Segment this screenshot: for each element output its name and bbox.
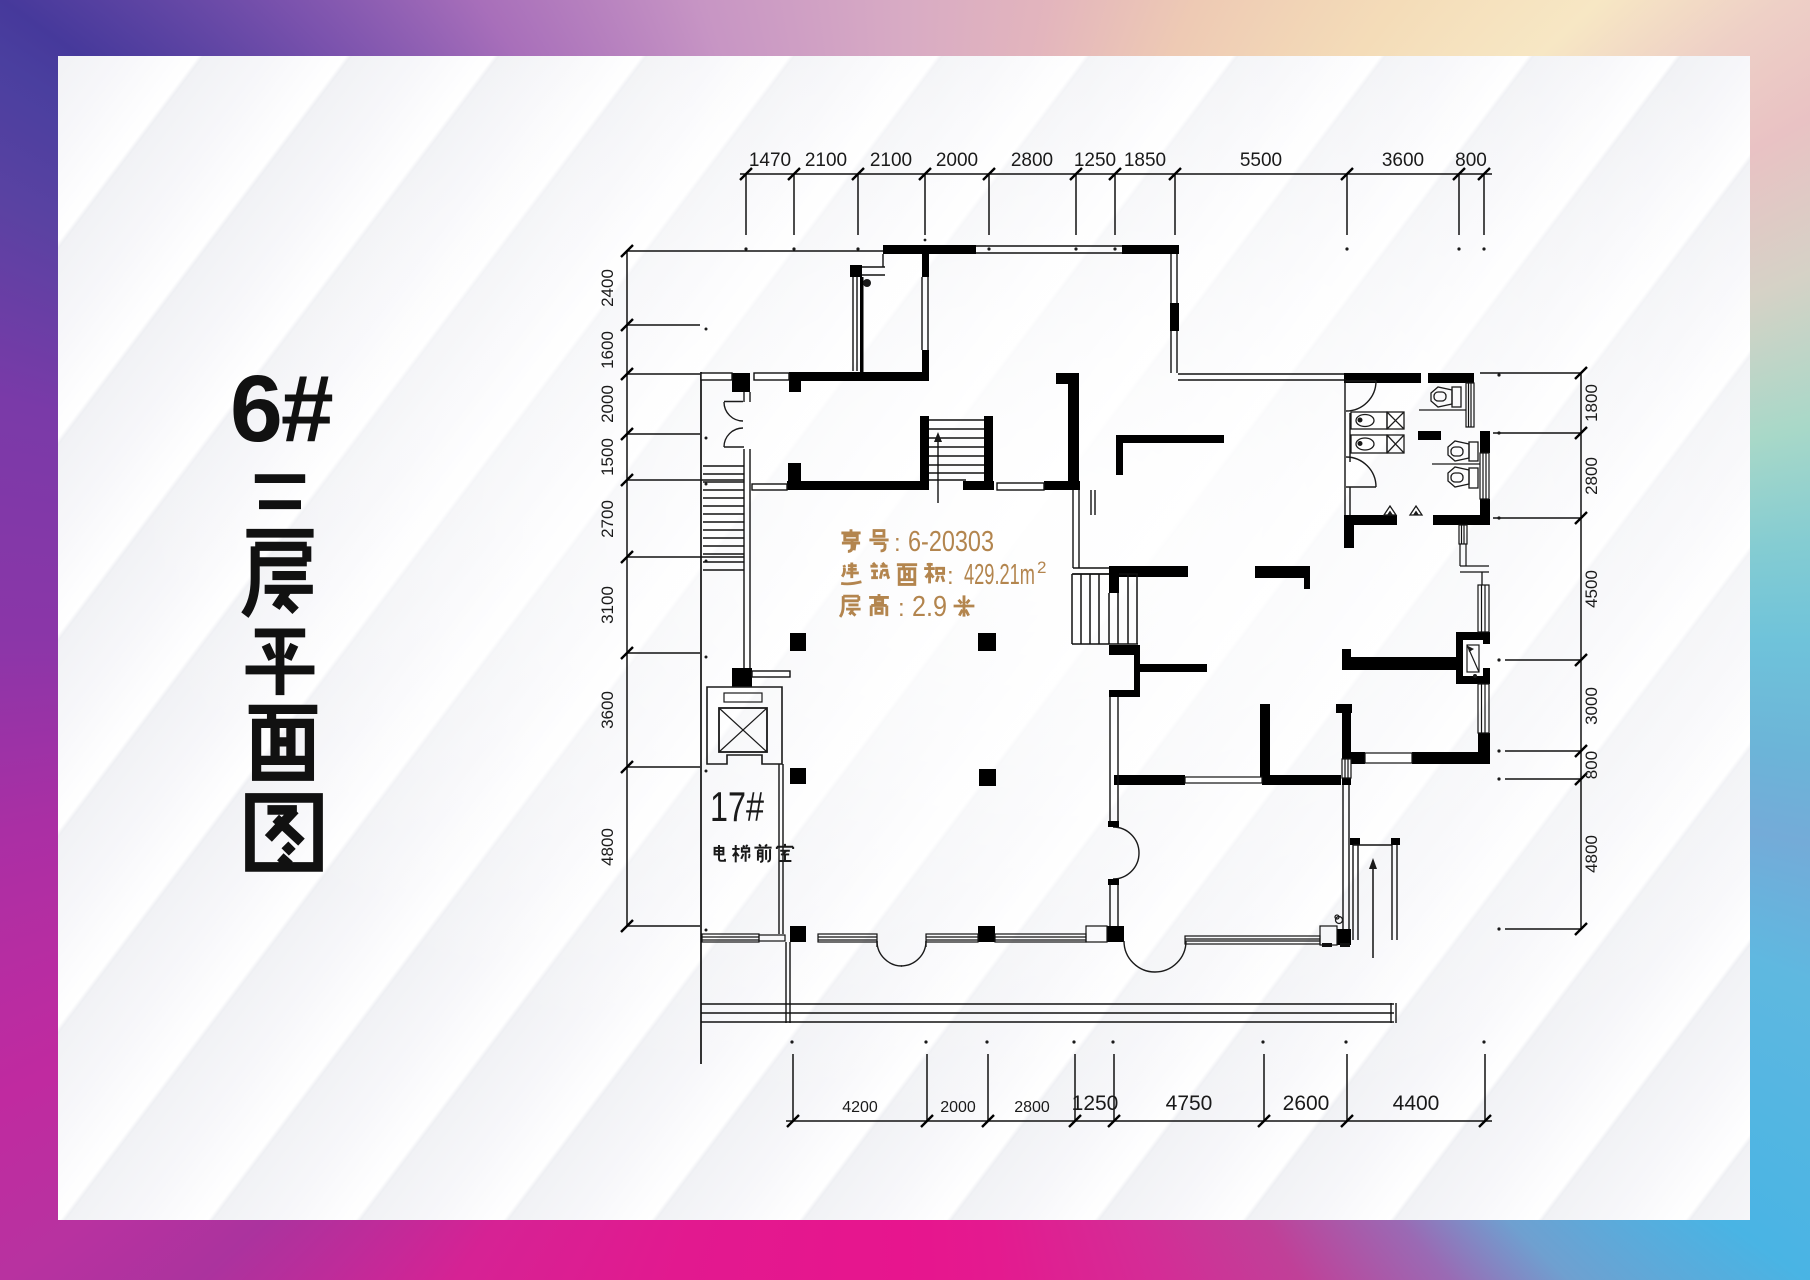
svg-text:1250: 1250 <box>1074 150 1116 171</box>
svg-text:2000: 2000 <box>940 1099 976 1116</box>
svg-text:4500: 4500 <box>1582 570 1601 608</box>
svg-text:2000: 2000 <box>598 385 617 423</box>
svg-text:2100: 2100 <box>805 150 847 171</box>
svg-text:1850: 1850 <box>1124 150 1166 171</box>
svg-text::: : <box>894 530 901 557</box>
svg-text:2400: 2400 <box>598 269 617 307</box>
svg-text:800: 800 <box>1582 751 1601 779</box>
svg-text:1250: 1250 <box>1072 1092 1119 1115</box>
svg-text:3600: 3600 <box>1382 150 1424 171</box>
svg-text:4800: 4800 <box>1582 835 1601 873</box>
svg-text:2.9: 2.9 <box>912 591 947 623</box>
svg-text:2800: 2800 <box>1582 457 1601 495</box>
svg-text::: : <box>947 563 954 590</box>
svg-text:2800: 2800 <box>1014 1099 1050 1116</box>
svg-text:4750: 4750 <box>1166 1092 1213 1115</box>
svg-text:2700: 2700 <box>598 500 617 538</box>
svg-text:3000: 3000 <box>1582 687 1601 725</box>
svg-text:2800: 2800 <box>1011 150 1053 171</box>
svg-text:2600: 2600 <box>1283 1092 1330 1115</box>
svg-text:1500: 1500 <box>598 438 617 476</box>
svg-text:2100: 2100 <box>870 150 912 171</box>
svg-text::: : <box>898 595 905 622</box>
svg-text:1600: 1600 <box>598 331 617 369</box>
svg-text:6-20303: 6-20303 <box>908 526 994 558</box>
svg-text:800: 800 <box>1455 150 1487 171</box>
svg-text:3600: 3600 <box>598 691 617 729</box>
svg-text:4800: 4800 <box>598 828 617 866</box>
svg-text:2000: 2000 <box>936 150 978 171</box>
svg-text:2: 2 <box>1037 558 1046 577</box>
svg-text:1800: 1800 <box>1582 384 1601 422</box>
svg-text:5500: 5500 <box>1240 150 1282 171</box>
svg-text:4400: 4400 <box>1393 1092 1440 1115</box>
svg-text:1470: 1470 <box>749 150 791 171</box>
svg-text:429.21m: 429.21m <box>964 559 1035 591</box>
svg-text:3100: 3100 <box>598 586 617 624</box>
svg-text:4200: 4200 <box>842 1099 878 1116</box>
svg-text:17#: 17# <box>710 783 764 830</box>
